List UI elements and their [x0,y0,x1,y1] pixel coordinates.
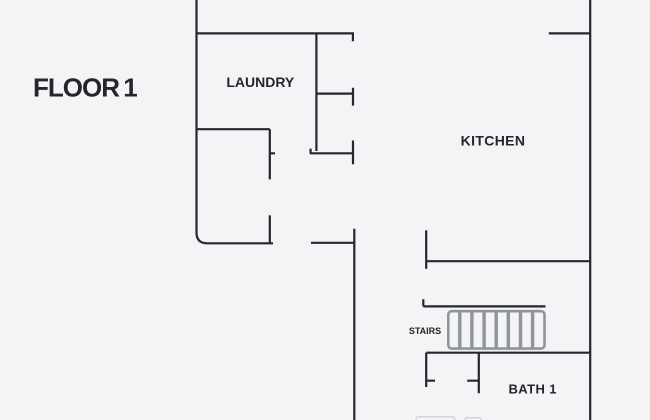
svg-text:FLOOR 1: FLOOR 1 [33,73,137,103]
svg-text:KITCHEN: KITCHEN [461,132,526,148]
svg-text:LAUNDRY: LAUNDRY [226,74,295,90]
svg-text:STAIRS: STAIRS [409,326,441,336]
svg-text:BATH 1: BATH 1 [509,382,557,397]
